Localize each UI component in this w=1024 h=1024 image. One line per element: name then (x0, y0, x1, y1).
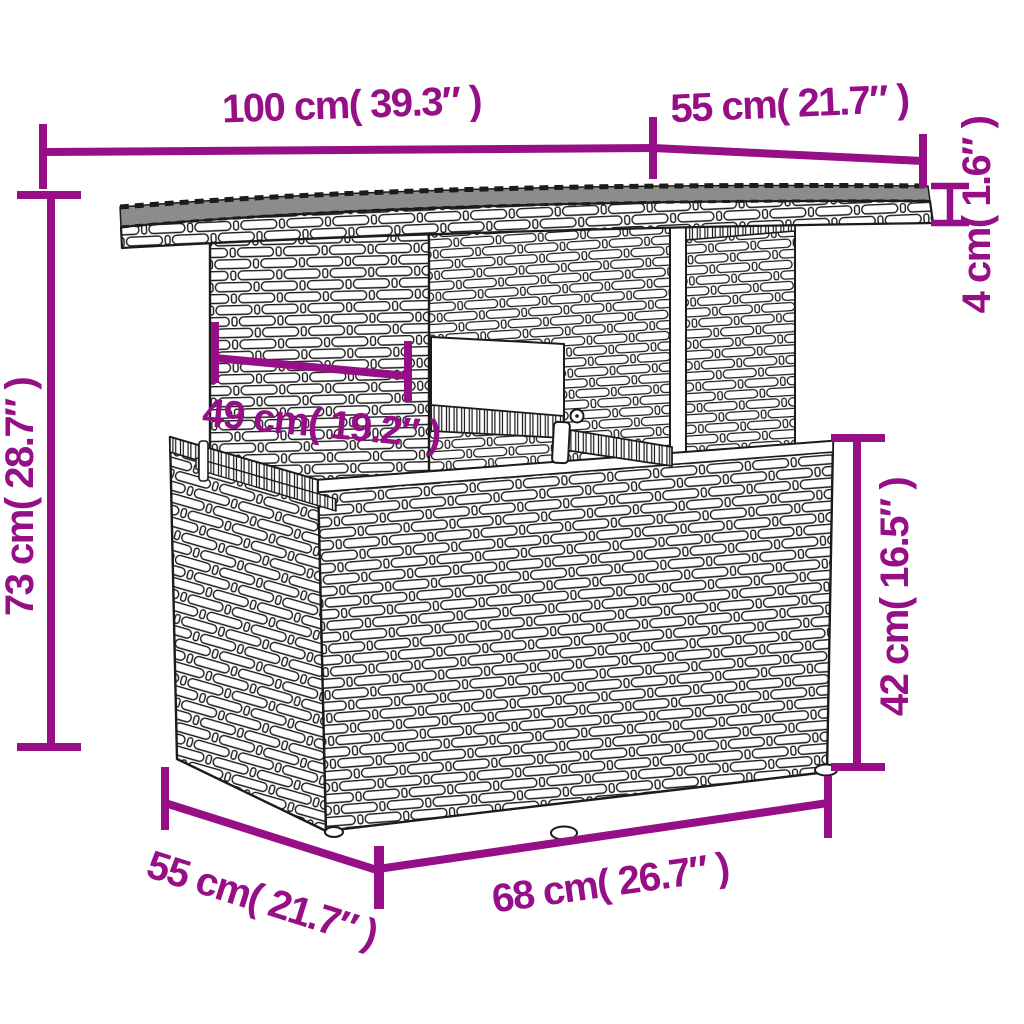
label-total-height: 73 cm( 28.7″ ) (0, 378, 42, 616)
label-base-height: 42 cm( 16.5″ ) (873, 478, 917, 716)
label-top-thickness: 4 cm( 1.6″ ) (955, 116, 999, 313)
label-top-width: 100 cm( 39.3″ ) (221, 78, 482, 131)
label-base-width: 68 cm( 26.7″ ) (489, 845, 731, 922)
dimension-diagram: 100 cm( 39.3″ ) 55 cm( 21.7″ ) 4 cm( 1.6… (0, 0, 1024, 1024)
diagram-canvas: 100 cm( 39.3″ ) 55 cm( 21.7″ ) 4 cm( 1.6… (0, 0, 1024, 1024)
screw-center (575, 414, 579, 418)
dimension-line-top-depth (653, 134, 923, 188)
support-plank-left (199, 441, 208, 481)
base-front-face (318, 441, 833, 831)
dimension-line-top-width (43, 117, 653, 189)
table-foot (325, 827, 343, 837)
support-plank-right (552, 422, 570, 464)
table-illustration (120, 185, 933, 839)
rear-leg-column (686, 217, 795, 459)
label-top-depth: 55 cm( 21.7″ ) (669, 77, 909, 131)
